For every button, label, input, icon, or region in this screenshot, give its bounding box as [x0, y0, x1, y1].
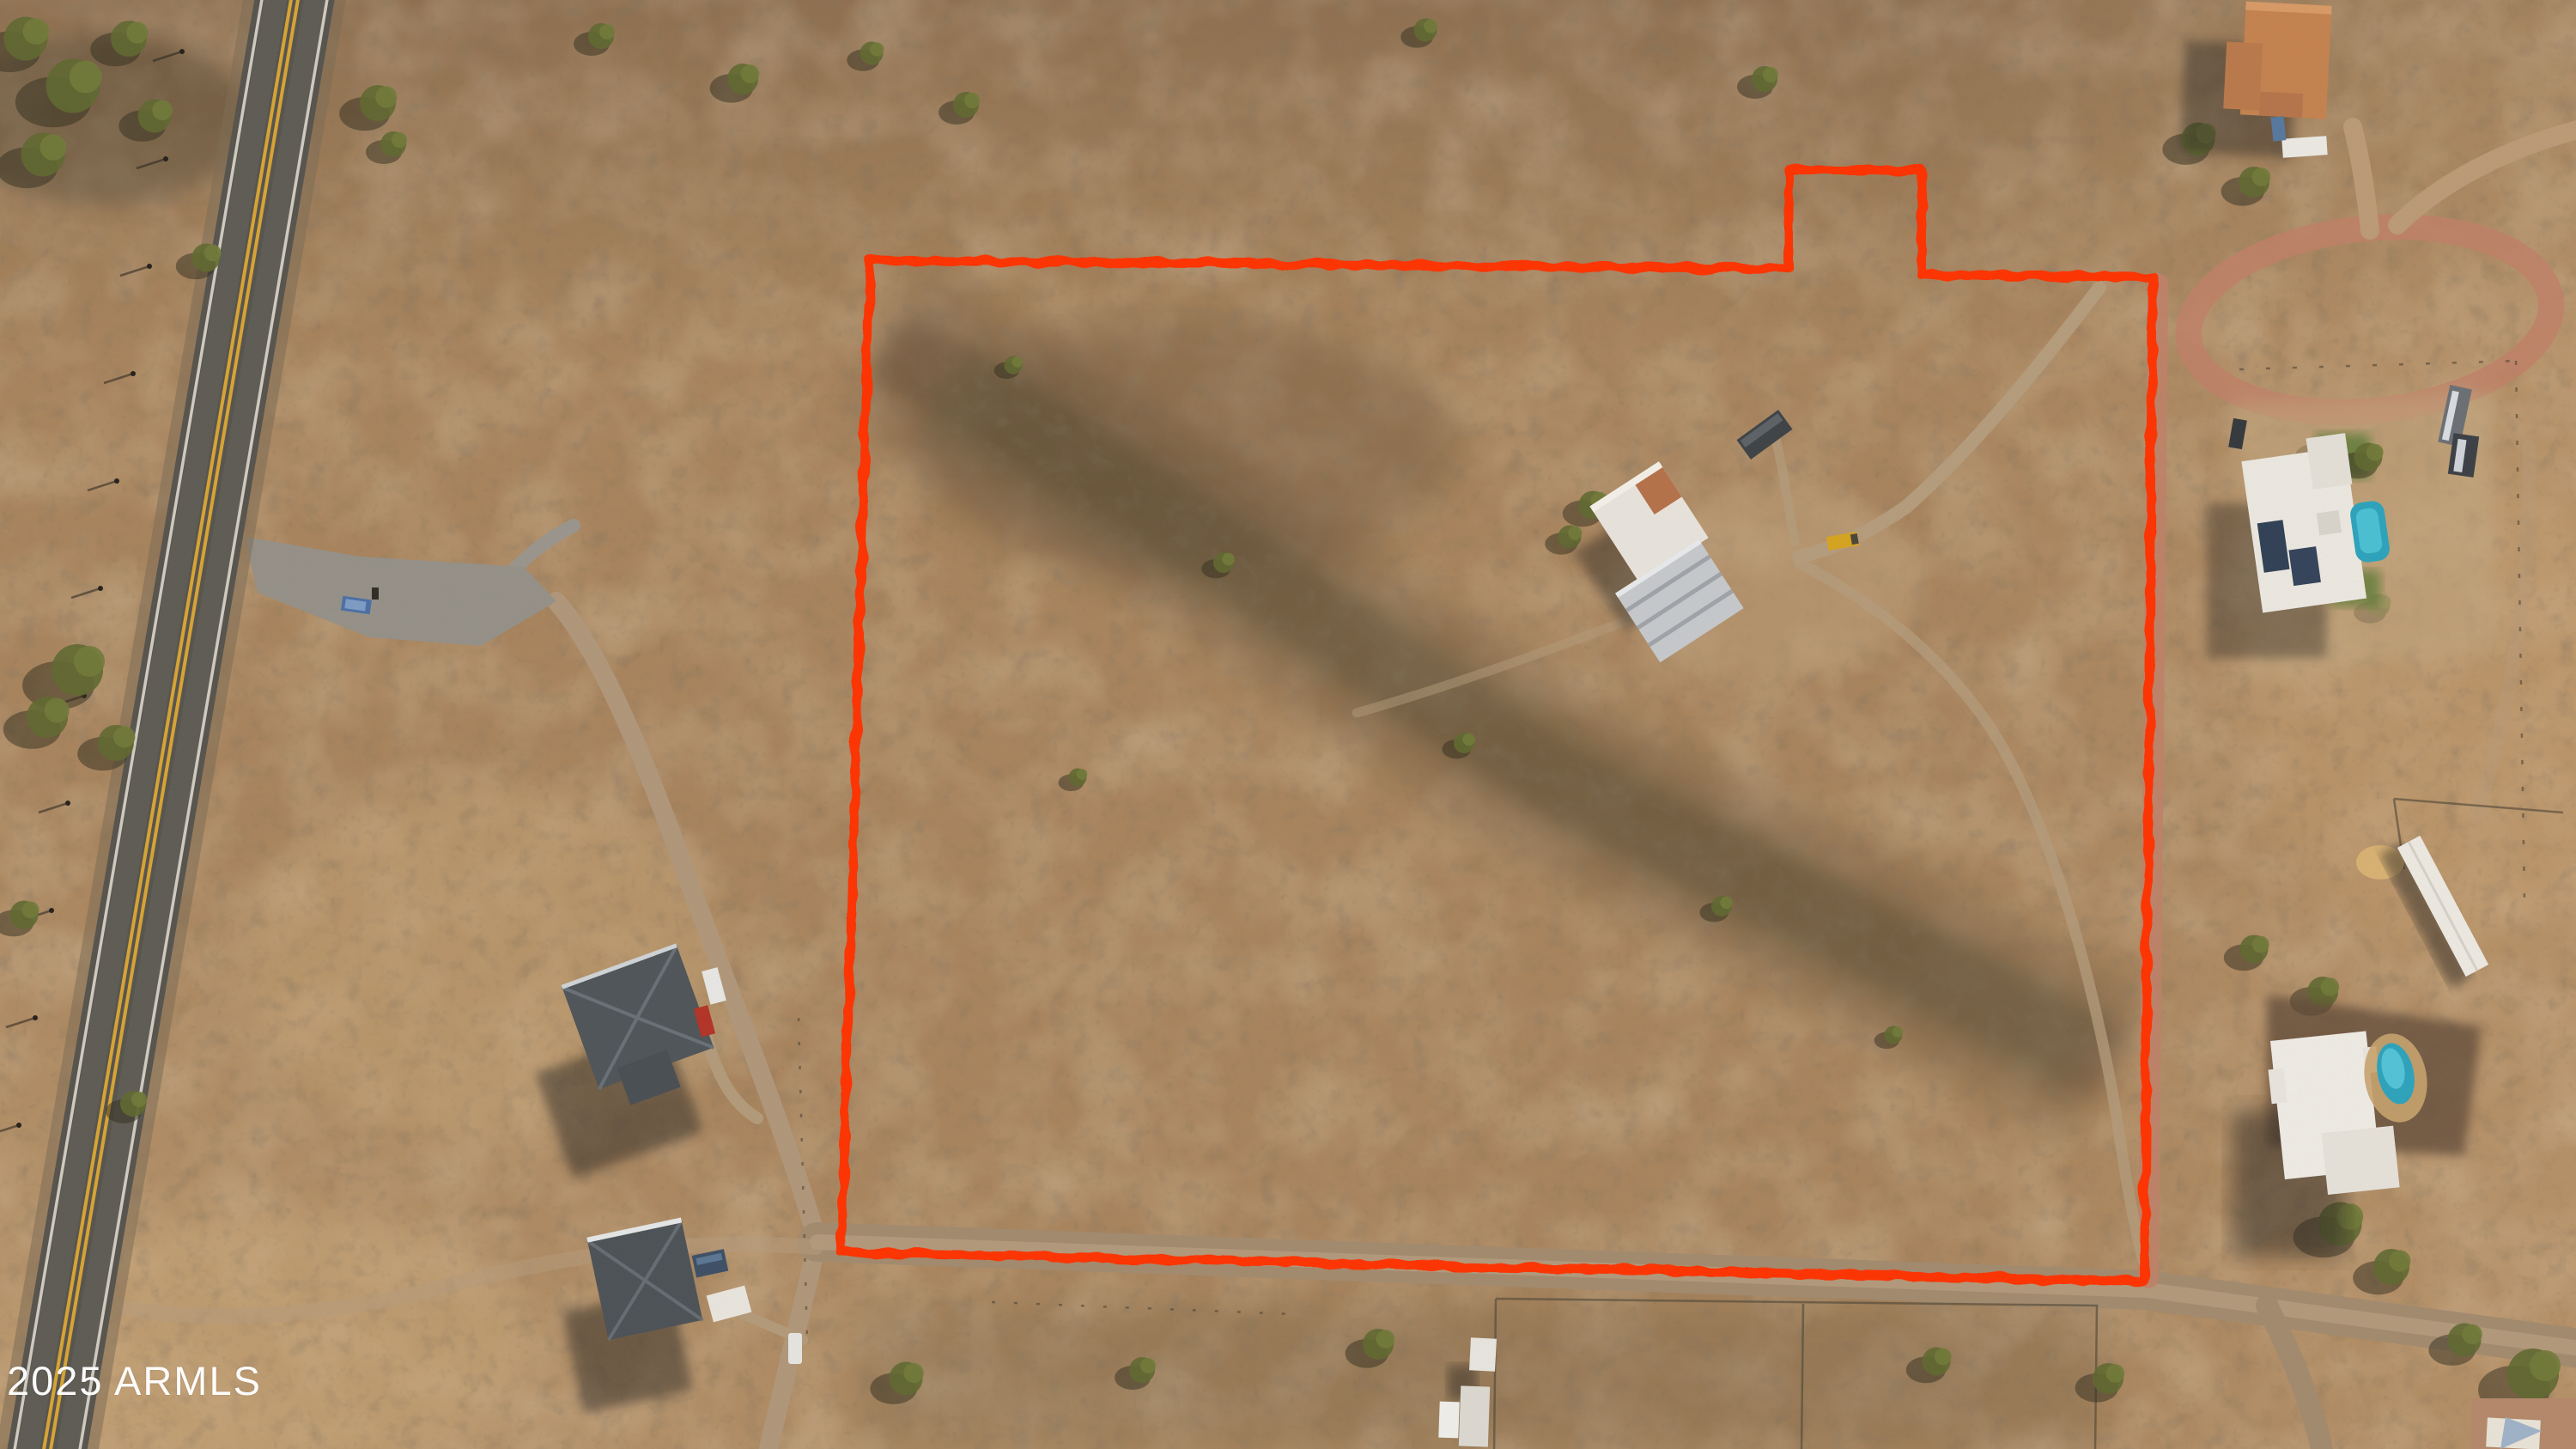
watermark-text: 2025 ARMLS	[7, 1361, 262, 1401]
photo-grain	[0, 0, 2576, 1449]
aerial-photo: 2025 ARMLS	[0, 0, 2576, 1449]
